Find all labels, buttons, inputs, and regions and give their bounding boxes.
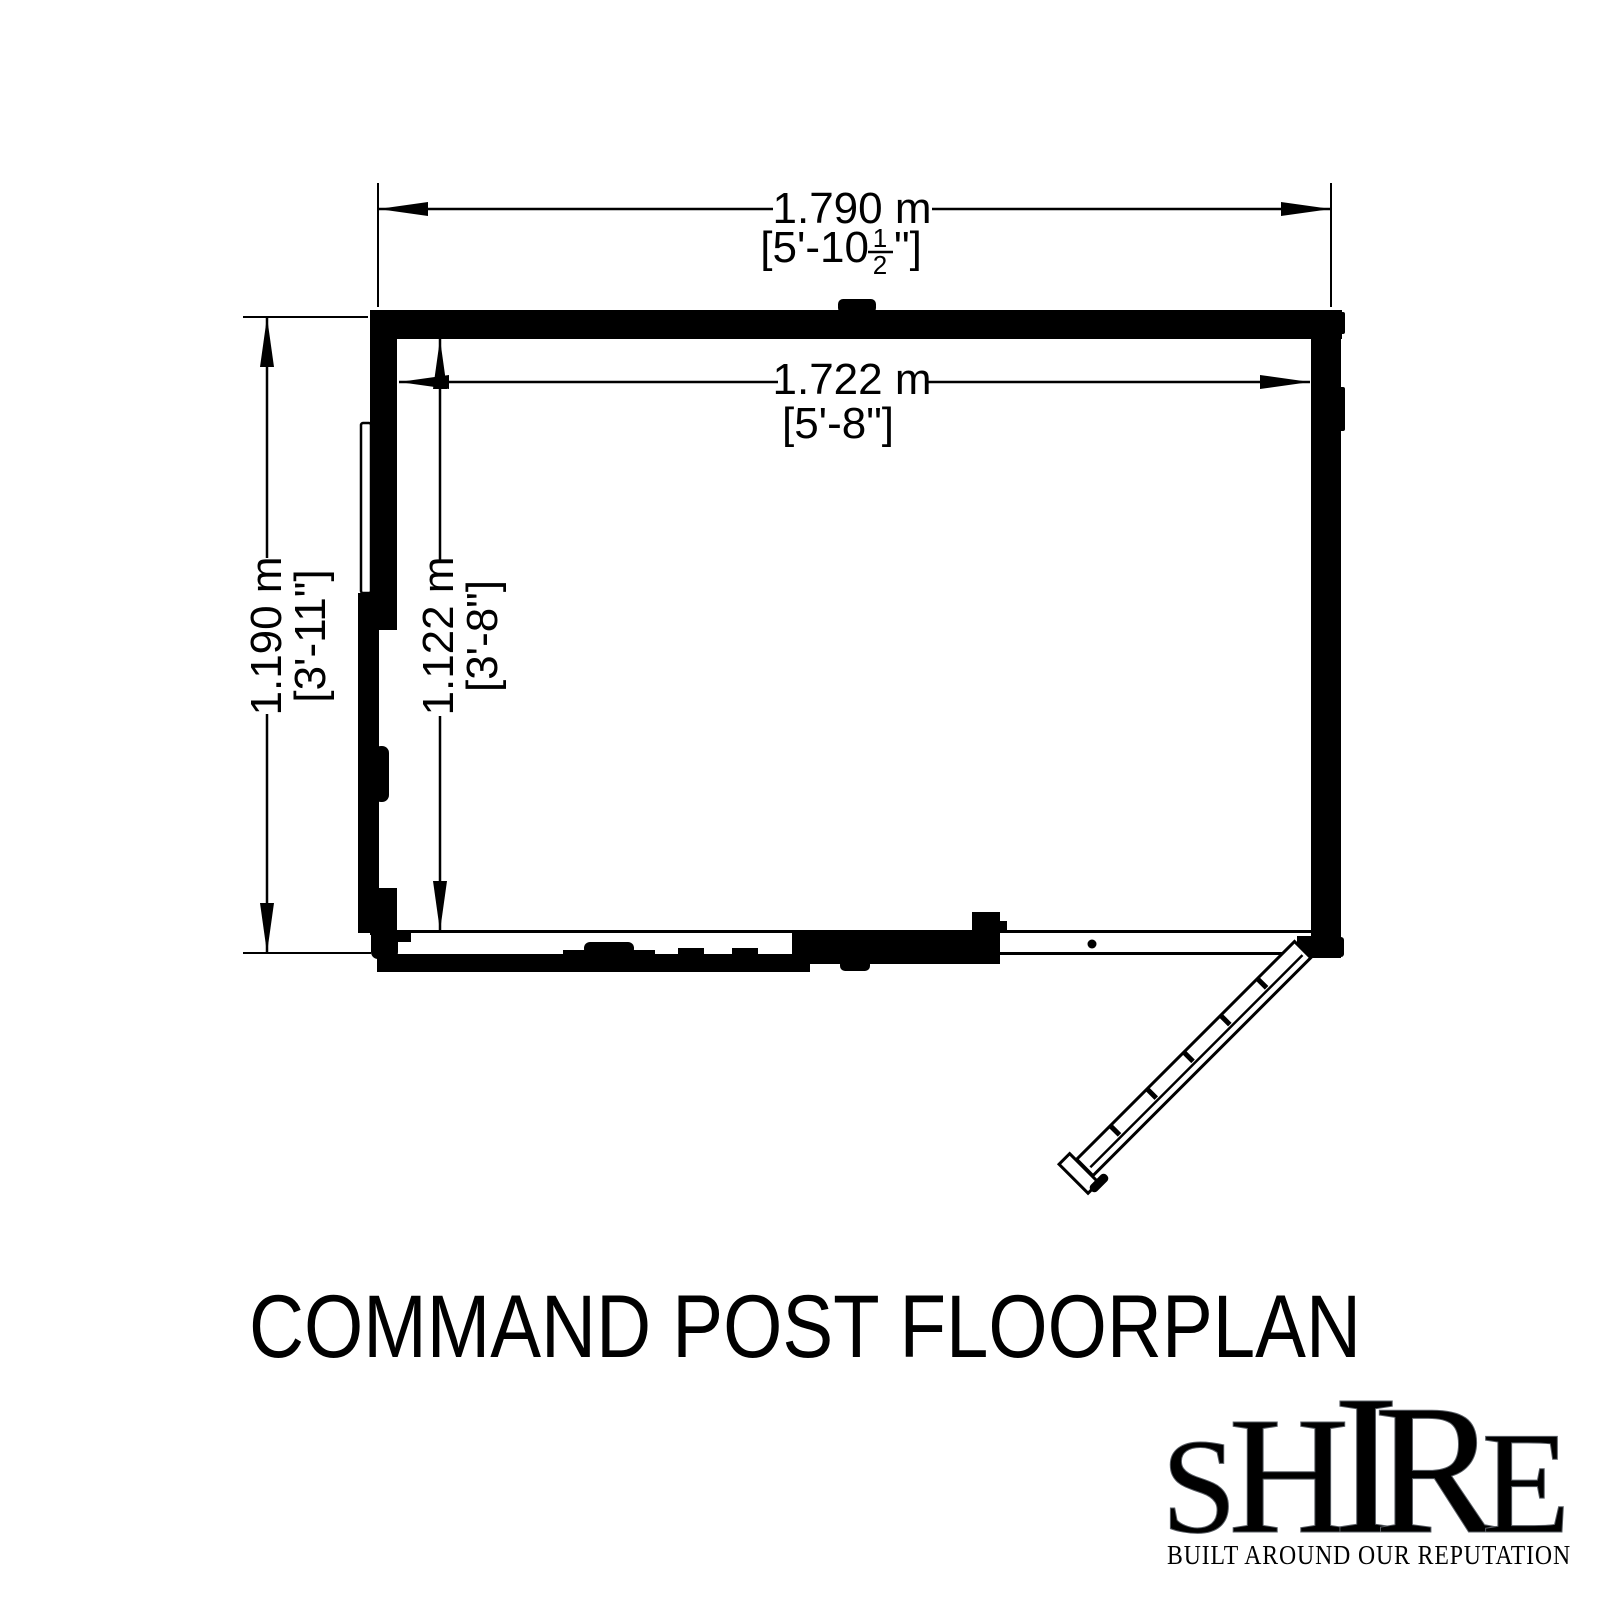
bottom-window-handle-base [563,950,655,956]
logo-tagline: BUILT AROUND OUR REPUTATION [1167,1540,1571,1570]
bottom-window-tick-2 [732,948,758,954]
outer-width-imperial-label: [5'-10 1 2 "] [760,223,922,280]
right-wall-hinge-lower [1339,387,1345,431]
door-jamb-post [972,912,1000,964]
bottom-wall-solid-section [795,933,1000,964]
arrow-outer-depth-bottom [260,903,274,953]
arrow-outer-width-left [378,202,428,216]
inner-depth-metric-label: 1.122 m [414,557,463,716]
door-jamb-notch [998,921,1007,932]
outer-width-imperial-prefix: [5'-10 [760,223,869,272]
outer-width-imperial-suffix: "] [894,223,922,272]
arrow-outer-width-right [1281,202,1331,216]
right-wall [1311,310,1341,958]
bottom-wall-foot [840,955,870,971]
open-door [1059,935,1321,1197]
bottom-wall-inner-face-line [397,930,1311,933]
door-leaf-inner-line [1089,954,1303,1168]
outer-depth-imperial-label: [3'-11"] [286,569,335,702]
inner-width-metric-label: 1.722 m [773,355,932,404]
arrow-outer-depth-top [260,317,274,367]
floorplan-figure: 1.790 m [5'-10 1 2 "] 1.722 m [5'-8"] 1.… [0,0,1600,1600]
outer-depth-metric-label: 1.190 m [242,557,291,716]
top-wall-vent-tab [838,299,876,313]
shire-logo: S H I R E BUILT AROUND OUR REPUTATION [1161,1355,1571,1576]
top-wall [370,310,1342,339]
bottom-window-tick-1 [678,948,704,954]
left-window-sash [361,423,371,593]
page: 1.790 m [5'-10 1 2 "] 1.722 m [5'-8"] 1.… [0,0,1600,1600]
right-wall-corner-bump [1336,937,1344,957]
bottom-window-left-end [397,930,411,942]
outer-width-fraction-numerator: 1 [873,223,887,253]
page-title: COMMAND POST FLOORPLAN [249,1276,1361,1376]
door-threshold-dot [1088,940,1097,949]
door-threshold-line [1000,952,1311,955]
right-wall-hinge-upper [1339,312,1345,334]
inner-depth-imperial-label: [3'-8"] [458,580,507,692]
left-window-handle [374,746,389,802]
inner-width-imperial-label: [5'-8"] [782,399,894,448]
bottom-window-outer-rail [377,954,810,972]
outer-width-fraction-denominator: 2 [873,250,887,280]
